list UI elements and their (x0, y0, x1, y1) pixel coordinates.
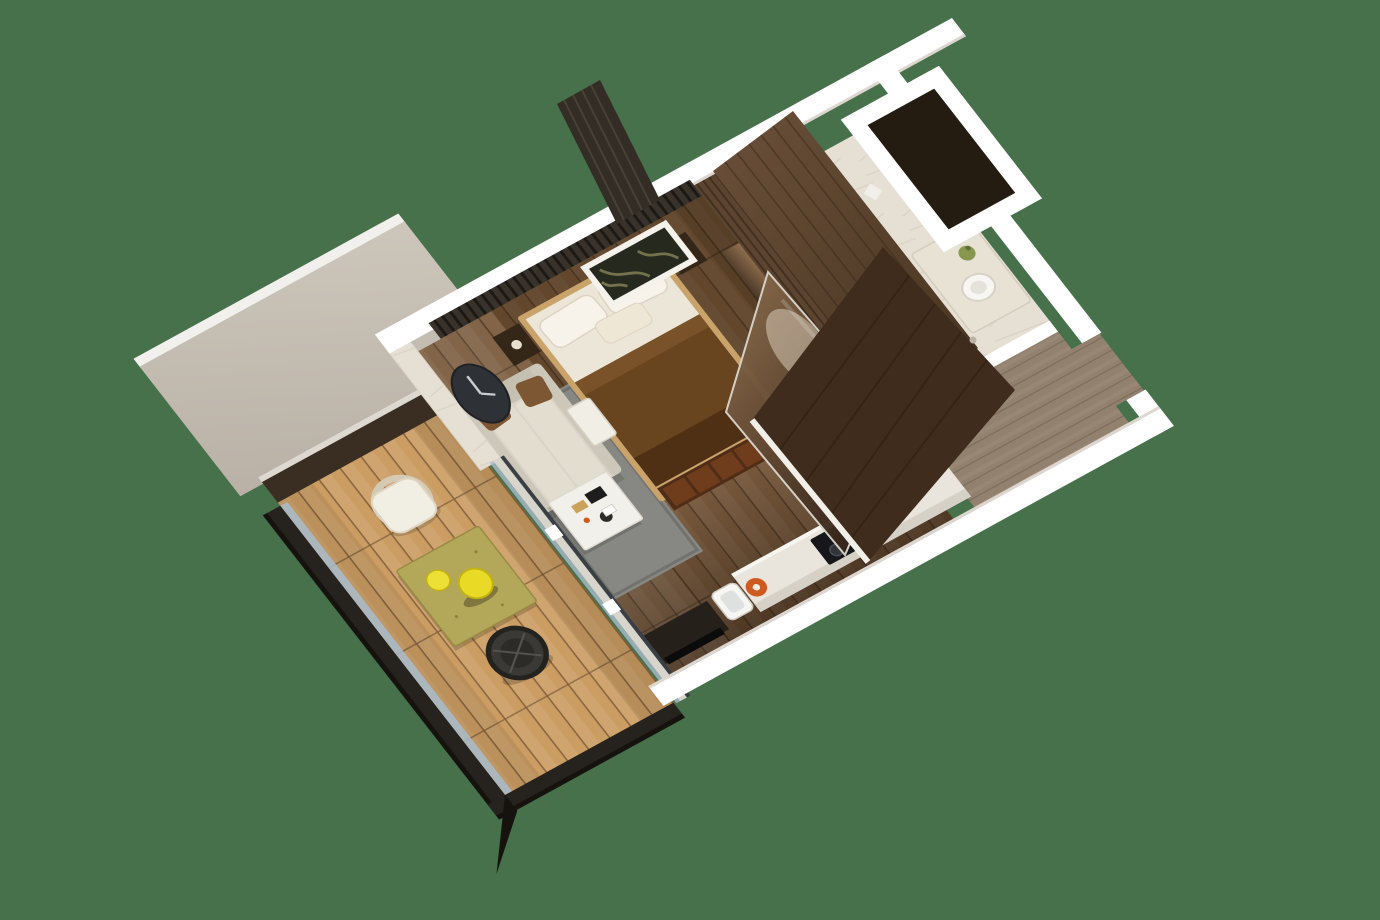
door-handle (970, 337, 977, 344)
floorplan-render (0, 0, 1380, 920)
